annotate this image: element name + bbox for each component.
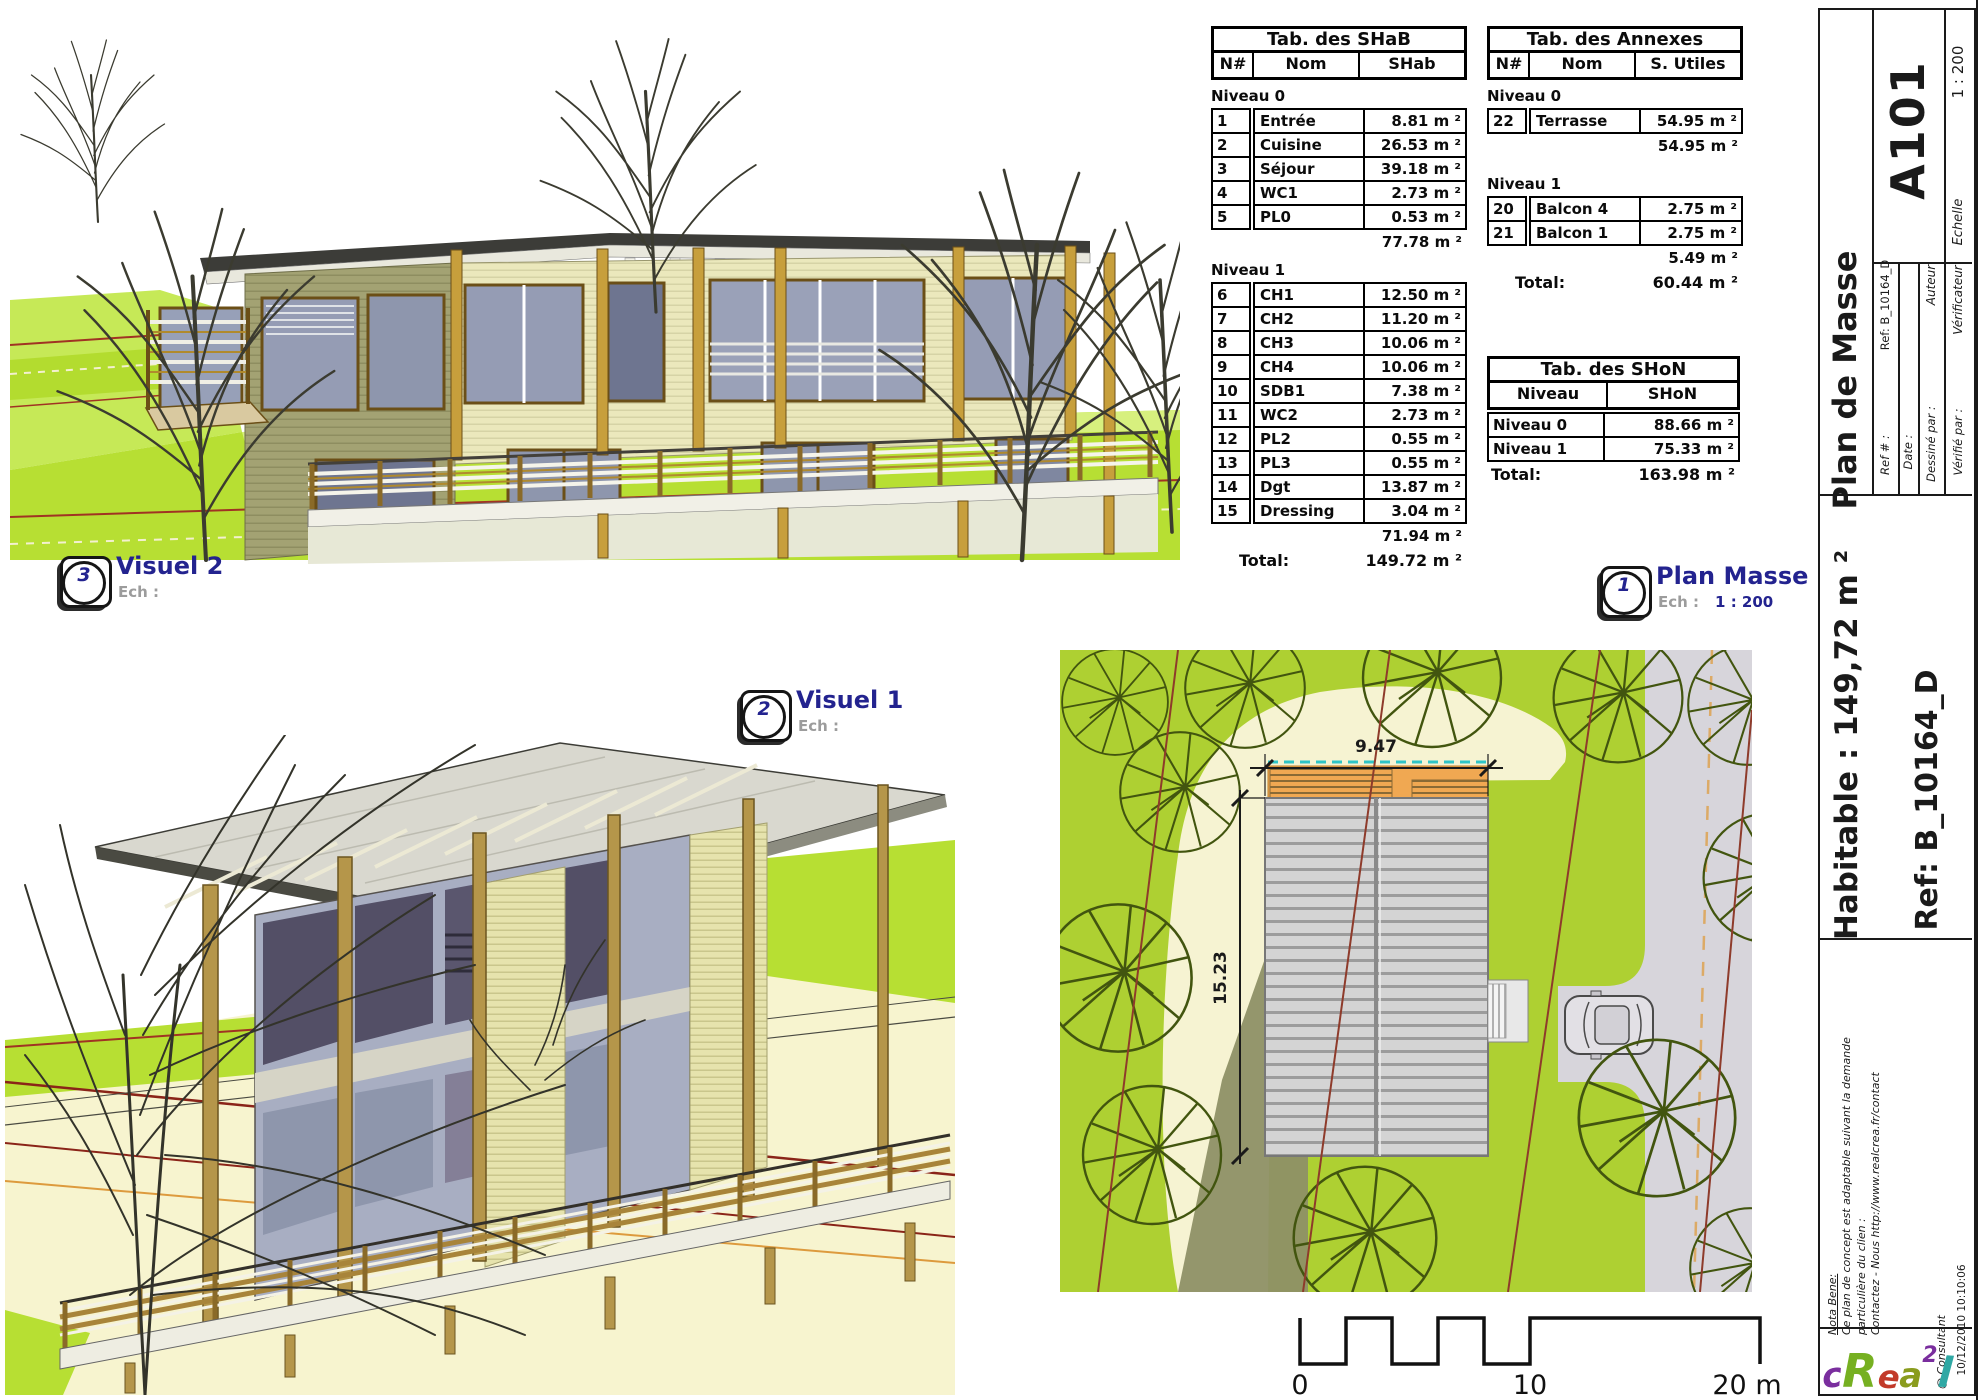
- subtotal: 54.95 m ²: [1487, 134, 1743, 158]
- building-roof: [1265, 762, 1528, 1156]
- header-cell: SHoN: [1608, 383, 1737, 407]
- cell-level: Niveau 0: [1487, 412, 1605, 438]
- cell-area: 7.38 m ²: [1363, 378, 1467, 404]
- cell-num: 15: [1211, 498, 1251, 524]
- table-header: N# Nom SHab: [1211, 53, 1467, 80]
- cell-area: 0.55 m ²: [1363, 450, 1467, 476]
- cell-num: 14: [1211, 474, 1251, 500]
- cell-area: 2.73 m ²: [1363, 180, 1467, 206]
- table-row: 11 WC2 2.73 m ²: [1211, 402, 1467, 428]
- table-row: Niveau 1 75.33 m ²: [1487, 436, 1740, 462]
- cell-name: Balcon 1: [1529, 220, 1641, 246]
- habitable-area: Habitable : 149,72 m ²: [1824, 485, 1870, 1005]
- view-badge-visuel2: 3: [60, 556, 112, 608]
- cell-area: 88.66 m ²: [1603, 412, 1740, 438]
- cell-area: 0.55 m ²: [1363, 426, 1467, 452]
- sheet-number: A101: [1878, 45, 1938, 215]
- dim-width-label: 9.47: [1355, 737, 1397, 757]
- table-row: 4 WC1 2.73 m ²: [1211, 180, 1467, 206]
- table-row: 10 SDB1 7.38 m ²: [1211, 378, 1467, 404]
- view-scale-plan-masse: Ech :1 : 200: [1658, 593, 1773, 611]
- drawn-field-label: Dessiné par :: [1924, 394, 1938, 494]
- nota-bene-line: particulière du clien :: [1855, 935, 1869, 1335]
- cell-num: 2: [1211, 132, 1251, 158]
- cell-area: 10.06 m ²: [1363, 330, 1467, 356]
- cell-area: 54.95 m ²: [1639, 108, 1743, 134]
- ech-label: Ech :: [1658, 593, 1699, 611]
- header-cell: Nom: [1530, 53, 1636, 77]
- table-row: 22 Terrasse 54.95 m ²: [1487, 108, 1743, 134]
- subtotal: 71.94 m ²: [1211, 524, 1467, 548]
- scale-ten-label: 10: [1513, 1370, 1547, 1400]
- group-label: Niveau 1: [1211, 258, 1467, 282]
- total-value: 149.72 m ²: [1289, 548, 1467, 574]
- table-row: 14 Dgt 13.87 m ²: [1211, 474, 1467, 500]
- cell-name: Séjour: [1253, 156, 1365, 182]
- cell-area: 2.75 m ²: [1639, 196, 1743, 222]
- group-label: Niveau 0: [1211, 84, 1467, 108]
- header-cell: N#: [1214, 53, 1254, 77]
- dim-height-label: 15.23: [1211, 951, 1231, 1005]
- shon-table: Tab. des SHoN Niveau SHoN Niveau 0 88.66…: [1487, 356, 1740, 488]
- visual-1-rendering: [5, 735, 955, 1395]
- cell-area: 2.73 m ²: [1363, 402, 1467, 428]
- cell-area: 10.06 m ²: [1363, 354, 1467, 380]
- ref-field-label: Ref # :: [1878, 415, 1892, 495]
- ref-value: Ref: B_10164_D: [1878, 235, 1892, 375]
- cell-name: PL2: [1253, 426, 1365, 452]
- visual-2-rendering: [10, 12, 1180, 572]
- view-scale-visuel2: Ech :: [118, 583, 175, 601]
- table-row: 2 Cuisine 26.53 m ²: [1211, 132, 1467, 158]
- cell-name: Cuisine: [1253, 132, 1365, 158]
- cell-num: 7: [1211, 306, 1251, 332]
- table-row: 9 CH4 10.06 m ²: [1211, 354, 1467, 380]
- header-cell: Nom: [1254, 53, 1360, 77]
- cell-num: 3: [1211, 156, 1251, 182]
- scale-value: 1 : 200: [1949, 17, 1967, 127]
- header-cell: S. Utiles: [1636, 53, 1740, 77]
- total-value: 163.98 m ²: [1541, 462, 1740, 488]
- table-row: 6 CH1 12.50 m ²: [1211, 282, 1467, 308]
- logo-letter: c: [1820, 1360, 1843, 1393]
- view-number: 1: [1602, 571, 1646, 615]
- view-number: 3: [62, 561, 106, 605]
- table-total: Total: 60.44 m ²: [1487, 270, 1743, 296]
- cell-name: WC2: [1253, 402, 1365, 428]
- drawn-value: Auteur: [1924, 240, 1938, 330]
- table-row: 12 PL2 0.55 m ²: [1211, 426, 1467, 452]
- table-header: N# Nom S. Utiles: [1487, 53, 1743, 80]
- cell-name: WC1: [1253, 180, 1365, 206]
- subtotal: 77.78 m ²: [1211, 230, 1467, 254]
- table-title: Tab. des SHaB: [1211, 26, 1467, 53]
- table-row: 1 Entrée 8.81 m ²: [1211, 108, 1467, 134]
- cell-num: 9: [1211, 354, 1251, 380]
- table-title: Tab. des SHoN: [1487, 356, 1740, 383]
- scale-zero-label: 0: [1291, 1370, 1308, 1400]
- total-label: Total:: [1487, 462, 1541, 488]
- cell-area: 13.87 m ²: [1363, 474, 1467, 500]
- cell-area: 26.53 m ²: [1363, 132, 1467, 158]
- total-value: 60.44 m ²: [1565, 270, 1743, 296]
- annexes-table: Tab. des Annexes N# Nom S. Utiles Niveau…: [1487, 26, 1743, 296]
- cell-name: SDB1: [1253, 378, 1365, 404]
- cell-num: 13: [1211, 450, 1251, 476]
- cell-num: 5: [1211, 204, 1251, 230]
- nota-bene-line: Ce plan de concept est adaptable suivant…: [1840, 935, 1854, 1335]
- logo-letter: a: [1899, 1361, 1922, 1392]
- checked-field-label: Vérifié par :: [1951, 392, 1965, 492]
- logo-letter: 2: [1922, 1346, 1937, 1366]
- logo-letter: l: [1936, 1354, 1953, 1393]
- cell-area: 75.33 m ²: [1603, 436, 1740, 462]
- table-row: 3 Séjour 39.18 m ²: [1211, 156, 1467, 182]
- table-row: 13 PL3 0.55 m ²: [1211, 450, 1467, 476]
- sheet-edge-line: [1976, 0, 1978, 1400]
- table-row: 8 CH3 10.06 m ²: [1211, 330, 1467, 356]
- view-scale-visuel1: Ech :: [798, 717, 855, 735]
- nota-bene-line: Contactez - Nous http://www.realcrea.fr/…: [1869, 935, 1883, 1335]
- cell-name: CH3: [1253, 330, 1365, 356]
- table-row: 5 PL0 0.53 m ²: [1211, 204, 1467, 230]
- cell-num: 6: [1211, 282, 1251, 308]
- table-row: 15 Dressing 3.04 m ²: [1211, 498, 1467, 524]
- cell-name: CH2: [1253, 306, 1365, 332]
- view-badge-visuel1: 2: [740, 690, 792, 742]
- nota-bene-title: Nota Bene:: [1826, 935, 1840, 1335]
- ech-value: 1 : 200: [1715, 593, 1773, 611]
- cell-num: 11: [1211, 402, 1251, 428]
- shab-table: Tab. des SHaB N# Nom SHab Niveau 0 1 Ent…: [1211, 26, 1467, 574]
- header-cell: SHab: [1360, 53, 1464, 77]
- cell-name: CH1: [1253, 282, 1365, 308]
- cell-name: Entrée: [1253, 108, 1365, 134]
- site-plan: 9.47 15.23: [1060, 650, 1752, 1292]
- cell-name: Terrasse: [1529, 108, 1641, 134]
- view-title-visuel2: Visuel 2: [116, 552, 223, 580]
- cell-area: 39.18 m ²: [1363, 156, 1467, 182]
- logo-letter: e: [1876, 1362, 1900, 1393]
- cell-name: CH4: [1253, 354, 1365, 380]
- date-field-label: Date :: [1901, 417, 1915, 487]
- car: [1565, 991, 1653, 1059]
- table-header: Niveau SHoN: [1487, 383, 1740, 410]
- view-badge-plan-masse: 1: [1600, 566, 1652, 618]
- nota-bene: Nota Bene: Ce plan de concept est adapta…: [1826, 935, 1906, 1335]
- cell-num: 8: [1211, 330, 1251, 356]
- cell-area: 8.81 m ²: [1363, 108, 1467, 134]
- table-row: 7 CH2 11.20 m ²: [1211, 306, 1467, 332]
- table-total: Total: 163.98 m ²: [1487, 462, 1740, 488]
- table-row: 21 Balcon 1 2.75 m ²: [1487, 220, 1743, 246]
- cell-num: 20: [1487, 196, 1527, 222]
- cell-name: Dressing: [1253, 498, 1365, 524]
- cell-area: 12.50 m ²: [1363, 282, 1467, 308]
- cell-num: 12: [1211, 426, 1251, 452]
- table-title: Tab. des Annexes: [1487, 26, 1743, 53]
- group-label: Niveau 1: [1487, 172, 1743, 196]
- ech-label: Ech :: [798, 717, 839, 735]
- logo-letter: R: [1842, 1351, 1877, 1392]
- cell-name: PL0: [1253, 204, 1365, 230]
- cell-num: 10: [1211, 378, 1251, 404]
- group-label: Niveau 0: [1487, 84, 1743, 108]
- cell-name: PL3: [1253, 450, 1365, 476]
- total-label: Total:: [1487, 270, 1565, 296]
- cell-name: Dgt: [1253, 474, 1365, 500]
- view-number: 2: [742, 695, 786, 739]
- table-total: Total: 149.72 m ²: [1211, 548, 1467, 574]
- reference-big: Ref: B_10164_D: [1906, 580, 1948, 1020]
- total-label: Total:: [1211, 548, 1289, 574]
- cell-area: 0.53 m ²: [1363, 204, 1467, 230]
- cell-area: 11.20 m ²: [1363, 306, 1467, 332]
- cell-num: 4: [1211, 180, 1251, 206]
- subtotal: 5.49 m ²: [1487, 246, 1743, 270]
- drawing-sheet: 9.47 15.23 0 10 20 m 3 Visuel 2 Ech : 2 …: [0, 0, 1980, 1400]
- cell-name: Balcon 4: [1529, 196, 1641, 222]
- table-row: 20 Balcon 4 2.75 m ²: [1487, 196, 1743, 222]
- checked-value: Vérificateur: [1951, 245, 1965, 355]
- ech-label: Ech :: [118, 583, 159, 601]
- view-title-visuel1: Visuel 1: [796, 686, 903, 714]
- header-cell: Niveau: [1490, 383, 1608, 407]
- crea-logo: c R e a 2 l: [1822, 1334, 1970, 1392]
- cell-area: 3.04 m ²: [1363, 498, 1467, 524]
- cell-num: 1: [1211, 108, 1251, 134]
- scale-twenty-label: 20 m: [1712, 1370, 1781, 1400]
- cell-area: 2.75 m ²: [1639, 220, 1743, 246]
- view-title-plan-masse: Plan Masse: [1656, 562, 1808, 590]
- cell-num: 21: [1487, 220, 1527, 246]
- cell-num: 22: [1487, 108, 1527, 134]
- header-cell: N#: [1490, 53, 1530, 77]
- cell-level: Niveau 1: [1487, 436, 1605, 462]
- table-row: Niveau 0 88.66 m ²: [1487, 412, 1740, 438]
- scale-bar: 0 10 20 m: [1285, 1300, 1785, 1400]
